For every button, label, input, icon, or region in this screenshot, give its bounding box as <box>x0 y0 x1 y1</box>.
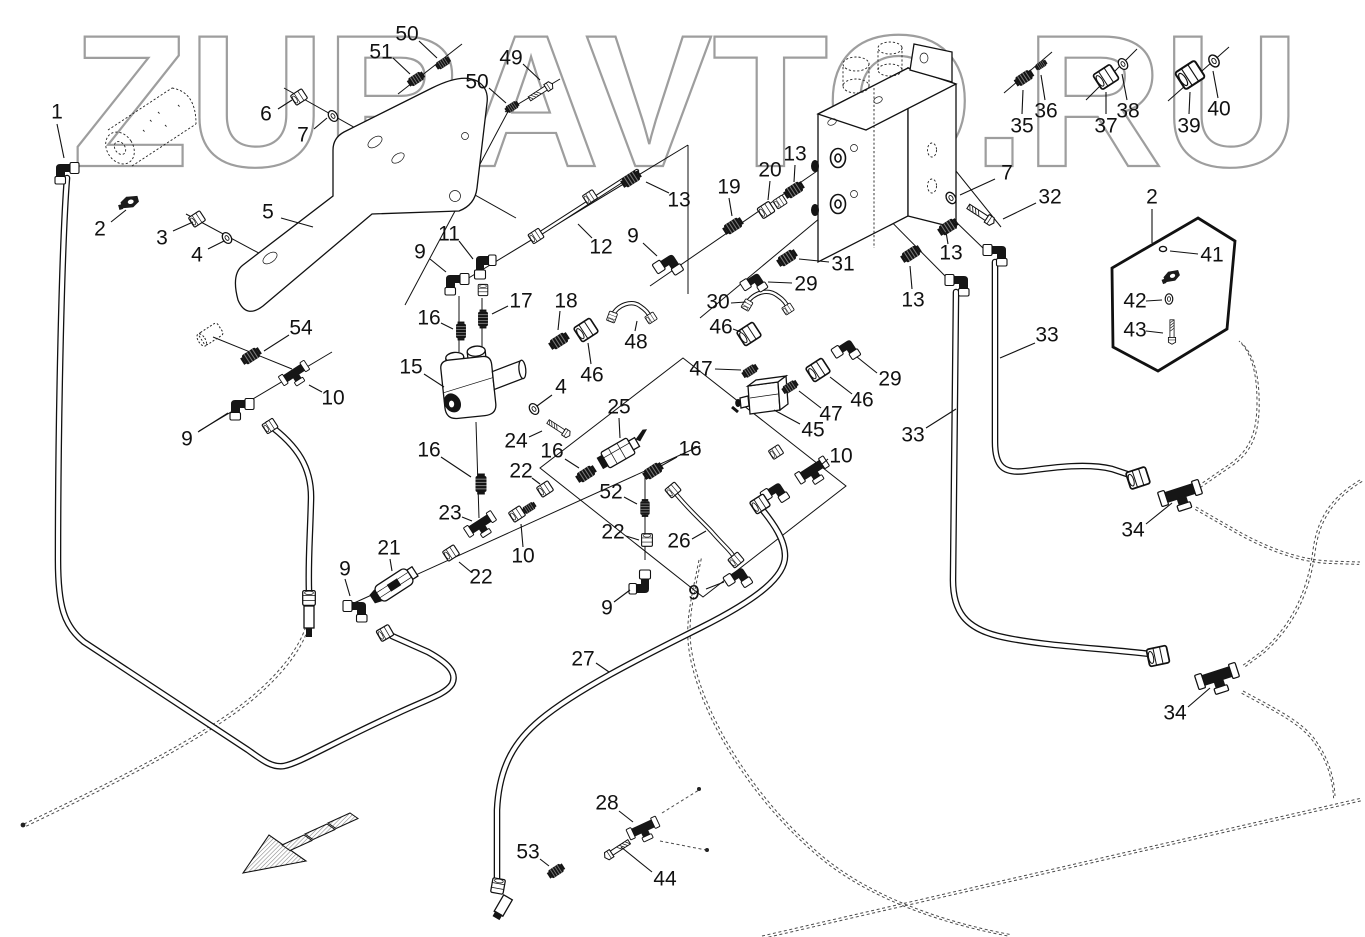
callout-label: 42 <box>1123 290 1146 313</box>
callout-label: 37 <box>1094 115 1117 138</box>
callout-label: 21 <box>377 537 400 560</box>
callout-leader <box>768 282 792 283</box>
elbow-9 <box>445 274 469 296</box>
callout-label: 30 <box>706 291 729 314</box>
elbow-29 <box>831 337 861 367</box>
callout-label: 23 <box>438 502 461 525</box>
hose33-nut <box>1126 467 1151 490</box>
elbow-9 <box>343 601 367 623</box>
callout-label: 13 <box>939 242 962 265</box>
callout-label: 40 <box>1207 98 1230 121</box>
callout-leader <box>540 859 549 866</box>
callout-leader <box>715 369 741 370</box>
check-valve-25 <box>595 427 654 472</box>
elbow-9 <box>723 565 753 595</box>
nut-10c <box>768 444 784 459</box>
callout-label: 16 <box>417 439 440 462</box>
check-valve-21 <box>367 564 420 607</box>
callout-label: 47 <box>689 358 712 381</box>
nut-11 <box>478 284 488 295</box>
callout-label: 48 <box>624 331 647 354</box>
callout-label: 51 <box>369 41 392 64</box>
callout-label: 22 <box>509 460 532 483</box>
elbow-9 <box>230 399 254 421</box>
callout-label: 13 <box>667 189 690 212</box>
callout-leader <box>799 391 821 408</box>
fitting-17 <box>478 310 488 329</box>
hose27-end-nut <box>491 878 506 895</box>
callout-leader <box>57 124 64 158</box>
callout-leader <box>1188 688 1210 707</box>
callout-leader <box>799 259 829 262</box>
hose33-nut <box>1146 645 1169 666</box>
callout-label: 9 <box>627 225 639 248</box>
callout-label: 34 <box>1121 519 1145 542</box>
callout-label: 6 <box>260 103 272 126</box>
callout-leader <box>624 497 637 504</box>
fitting-31 <box>775 248 799 269</box>
callout-label: 11 <box>438 223 460 246</box>
callout-label: 4 <box>555 376 567 399</box>
callout-label: 3 <box>156 227 168 250</box>
callout-label: 13 <box>783 143 806 166</box>
direction-arrow <box>243 813 358 873</box>
callout-label: 10 <box>829 445 852 468</box>
callout-leader <box>537 395 552 406</box>
callout-label: 29 <box>878 368 901 391</box>
tube-30 <box>746 292 788 308</box>
callout-label: 33 <box>1035 324 1058 347</box>
callout-label: 45 <box>801 419 824 442</box>
callout-label: 16 <box>540 440 563 463</box>
callout-label: 36 <box>1034 100 1057 123</box>
callout-leader <box>492 306 508 314</box>
hose14-end-nut <box>303 591 316 606</box>
tube30-nut <box>782 303 795 315</box>
tube-48 <box>612 303 650 317</box>
callout-label: 9 <box>181 428 193 451</box>
callout-leader <box>345 579 350 596</box>
callout-leader <box>588 343 591 364</box>
callout-label: 19 <box>717 176 740 199</box>
callout-label: 28 <box>595 792 618 815</box>
fitting-47 <box>741 363 760 380</box>
callout-leader <box>462 517 472 521</box>
fitting-13 <box>899 244 923 265</box>
callout-leader <box>910 266 912 289</box>
callout-label: 53 <box>516 841 539 864</box>
callout-label: 34 <box>1163 702 1187 725</box>
callout-leader <box>774 410 800 424</box>
callout-leader <box>1146 503 1172 524</box>
callout-leader <box>614 590 630 602</box>
callout-label: 7 <box>1001 162 1013 185</box>
callout-label: 16 <box>417 307 440 330</box>
callout-label: 2 <box>94 218 106 241</box>
nut-3 <box>188 211 205 228</box>
elbow-9 <box>629 570 651 594</box>
fitting-46 <box>736 322 761 346</box>
callout-leader <box>459 241 473 259</box>
parts-diagram-page: ZURAVTO.RU <box>0 0 1365 937</box>
callout-leader <box>565 459 579 468</box>
bolt-24 <box>546 418 572 439</box>
solenoid-block-45 <box>732 376 788 414</box>
callout-leader <box>173 222 193 231</box>
callout-leader <box>532 478 540 484</box>
callout-label: 12 <box>589 236 612 259</box>
callout-leader <box>621 847 652 872</box>
callout-label: 50 <box>395 23 418 46</box>
callout-label: 9 <box>601 597 613 620</box>
fitting-16 <box>476 474 487 495</box>
callout-label: 44 <box>653 868 677 891</box>
callout-leader <box>529 431 542 437</box>
callout-label: 18 <box>554 290 577 313</box>
callout-label: 29 <box>794 273 817 296</box>
callout-label: 46 <box>850 389 873 412</box>
callout-label: 50 <box>465 71 488 94</box>
callout-label: 25 <box>607 396 630 419</box>
callout-leader <box>661 457 677 466</box>
fitting-19 <box>721 216 745 237</box>
callout-leader <box>111 210 126 222</box>
callout-leader <box>430 259 446 272</box>
fitting-18 <box>547 331 571 352</box>
plug-fitting <box>195 322 224 348</box>
tee-34 <box>1157 479 1205 516</box>
elbow-11 <box>475 255 497 279</box>
callout-label: 15 <box>399 356 422 379</box>
callout-label: 24 <box>504 430 528 453</box>
fitting-46 <box>805 358 830 382</box>
callout-leader <box>198 413 228 432</box>
callout-label: 33 <box>901 424 924 447</box>
callout-label: 10 <box>321 387 344 410</box>
washer-42 <box>1165 294 1173 304</box>
fitting-53 <box>546 862 566 880</box>
callout-label: 26 <box>667 530 690 553</box>
parts-diagram-canvas: ZURAVTO.RU <box>0 0 1365 937</box>
callout-label: 38 <box>1116 100 1139 123</box>
callout-label: 7 <box>297 124 309 147</box>
fitting-46b <box>573 318 598 342</box>
callout-leader <box>830 377 852 394</box>
nut-22 <box>442 545 459 562</box>
callout-label: 13 <box>901 289 924 312</box>
callout-label: 46 <box>580 364 603 387</box>
callout-label: 4 <box>191 244 203 267</box>
nut-22 <box>642 534 653 547</box>
tee-10 <box>278 360 313 392</box>
callout-leader <box>596 663 609 672</box>
callout-label: 27 <box>571 648 594 671</box>
callout-leader <box>208 241 224 249</box>
elbow-9 <box>652 252 684 283</box>
callout-label: 9 <box>414 241 426 264</box>
tube48-nut <box>606 311 617 323</box>
hose-33-right <box>995 262 1130 475</box>
bolt-44 <box>603 838 632 861</box>
callout-label: 9 <box>688 582 700 605</box>
callout-leader <box>441 457 471 477</box>
callout-label: 43 <box>1123 319 1146 342</box>
tee-34 <box>1194 662 1242 699</box>
callout-leader <box>390 559 392 571</box>
callout-label: 5 <box>262 201 274 224</box>
callout-leader <box>619 811 633 822</box>
callout-label: 16 <box>678 438 701 461</box>
callout-label: 52 <box>599 481 622 504</box>
callout-leader <box>558 311 560 330</box>
callout-label: 20 <box>758 159 781 182</box>
fitting-16 <box>456 322 466 341</box>
fitting-52 <box>640 499 649 517</box>
callout-leader <box>264 335 289 351</box>
callout-leader <box>635 321 637 331</box>
callout-label: 41 <box>1200 244 1223 267</box>
callout-label: 17 <box>509 290 532 313</box>
callout-label: 32 <box>1038 186 1061 209</box>
callout-label: 35 <box>1010 115 1033 138</box>
pressure-valve-body <box>435 341 530 420</box>
callout-leader <box>643 243 657 256</box>
callout-label: 1 <box>51 101 63 124</box>
washer-4b <box>527 402 540 416</box>
callout-label: 54 <box>289 317 313 340</box>
callout-label: 9 <box>339 558 351 581</box>
callout-label: 22 <box>601 521 624 544</box>
callout-label: 31 <box>831 253 854 276</box>
callout-leader <box>619 418 620 438</box>
callout-label: 39 <box>1177 115 1200 138</box>
callout-leader <box>1000 343 1035 358</box>
callout-label: 49 <box>499 47 522 70</box>
callout-label: 22 <box>469 566 492 589</box>
callout-leader <box>309 385 322 392</box>
callout-label: 2 <box>1146 186 1158 209</box>
callout-label: 46 <box>709 316 732 339</box>
callout-leader <box>692 531 706 539</box>
callout-leader <box>857 357 877 373</box>
callout-label: 10 <box>511 545 534 568</box>
callout-leader <box>441 323 453 329</box>
phantom-pipes <box>21 341 1363 937</box>
